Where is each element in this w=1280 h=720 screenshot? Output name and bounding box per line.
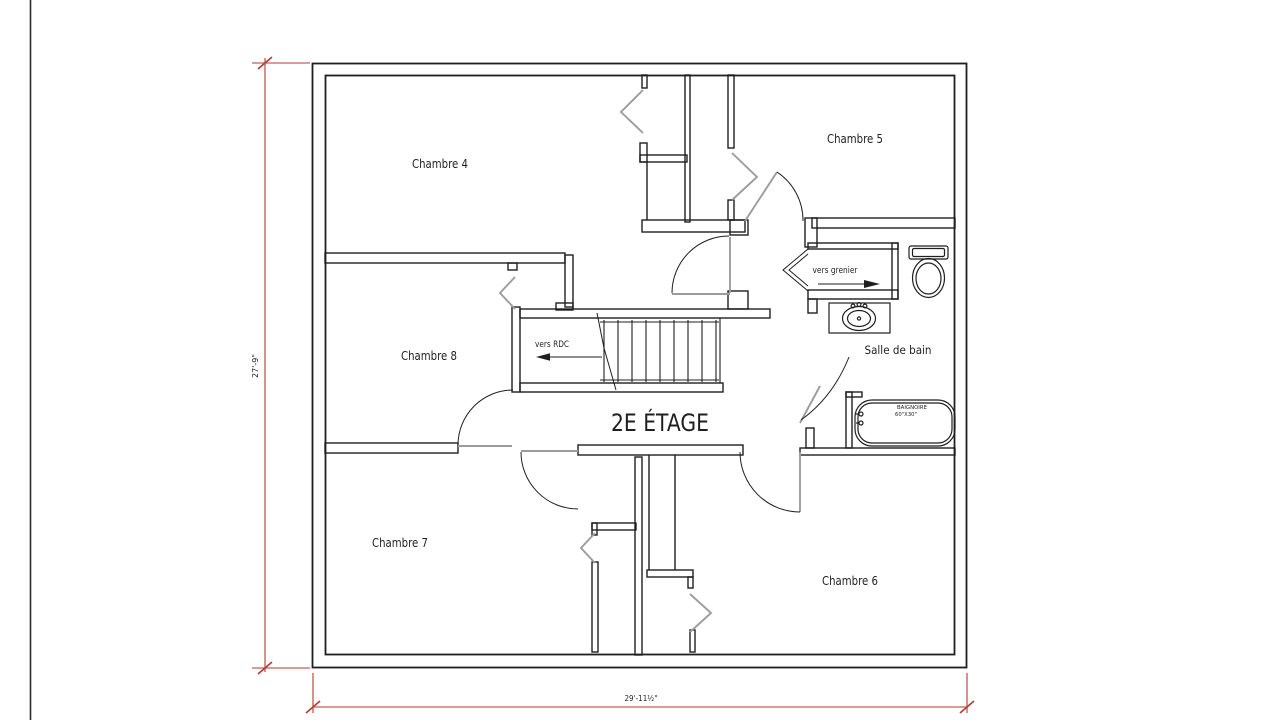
room-label-chambre-6: Chambre 6 — [822, 574, 878, 588]
bath-door-arc — [801, 357, 849, 420]
wall-tub-cap — [846, 392, 862, 397]
toilet-bowl — [913, 259, 945, 298]
sink-icon — [829, 303, 890, 333]
c5-closet-door — [732, 153, 757, 200]
annotation-vers-grenier: vers grenier — [813, 266, 858, 276]
sink-faucet-handle — [863, 304, 867, 308]
sink-vanity — [829, 303, 890, 333]
plan-title: 2E ÉTAGE — [611, 408, 709, 437]
c7-closet-door — [581, 533, 595, 563]
room-label-salle-de-bain: Salle de bain — [865, 343, 932, 357]
c5-door-leaf — [745, 172, 777, 221]
bathtub-faucet — [859, 412, 863, 416]
wall-c7-closet-left — [592, 562, 598, 652]
sink-basin-inner — [848, 311, 871, 327]
c6-closet-door — [690, 594, 711, 632]
wall-c5-south — [812, 218, 955, 228]
sink-drain — [857, 317, 860, 320]
attic-door-outer — [783, 249, 808, 291]
wall-bathdoor-stub-bottom — [806, 428, 814, 448]
wall-stair-step — [728, 291, 748, 309]
wall-closet-divider-top — [685, 75, 690, 222]
wall-c6-closet-stub — [690, 630, 695, 652]
wall-c6-closet-hinge — [688, 577, 693, 588]
c6-door-arc — [740, 452, 800, 512]
wall-c7-closet-top — [592, 523, 636, 530]
wall-c8-c7 — [325, 443, 458, 453]
vers-rdc-arrow-head — [536, 353, 550, 361]
vers-grenier-arrow-head — [864, 280, 880, 288]
wall-stair-bottom — [520, 383, 723, 392]
room-label-chambre-7: Chambre 7 — [372, 536, 428, 550]
staircase — [597, 313, 720, 390]
wall-bath-c6 — [800, 448, 955, 455]
toilet-icon — [909, 246, 948, 298]
hall-door-arc — [672, 236, 729, 293]
doors — [458, 90, 849, 632]
c8-door-arc — [458, 390, 513, 445]
room-label-chambre-8: Chambre 8 — [401, 349, 457, 363]
c7-door-arc — [521, 452, 578, 509]
toilet-bowl-inner — [916, 263, 941, 294]
wall-hinge-stub — [508, 263, 517, 270]
c5-door-arc — [777, 172, 803, 221]
wall-attic-bottom — [808, 290, 898, 299]
wall-c5-closet-left — [728, 75, 734, 148]
wall-attic-top — [808, 243, 898, 249]
wall-c7-c6 — [578, 445, 743, 455]
sink-faucet-handle — [851, 304, 855, 308]
wall-c6-closet-top — [647, 570, 693, 577]
room-label-chambre-4: Chambre 4 — [412, 157, 468, 171]
wall-c7-c6-divider — [635, 457, 642, 655]
annotation-vers-rdc: vers RDC — [535, 340, 569, 350]
dim-label-vertical: 27'-9" — [251, 354, 260, 378]
bath-door-leaf — [800, 386, 820, 423]
sink-faucet-spout — [857, 303, 861, 307]
c4-closet-door — [621, 90, 643, 133]
wall-stair-left — [512, 307, 520, 392]
wall-c4-closet-stub — [640, 143, 647, 162]
toilet-tank-inner — [913, 249, 945, 257]
room-label-chambre-5: Chambre 5 — [827, 132, 883, 146]
floor-plan-svg: Chambre 4 Chambre 5 Chambre 8 Chambre 7 … — [0, 0, 1280, 720]
dimension-lines — [252, 57, 974, 713]
wall-c5-closet-stub — [728, 200, 734, 220]
c8-closet-door — [500, 277, 515, 309]
bathtub-label-line1: BAIGNOIRE — [897, 405, 927, 411]
wall-tub-left — [846, 392, 852, 448]
wall-top-stub — [642, 75, 647, 88]
wall-c8-closet-right — [565, 255, 573, 307]
bathtub-faucet — [859, 421, 863, 425]
wall-bathdoor-stub-top — [808, 299, 817, 313]
attic-door-inner — [789, 254, 808, 286]
dim-label-horizontal: 29'-11½" — [625, 694, 658, 703]
stair-break-line — [597, 313, 616, 390]
bathtub-label-line2: 60"X30" — [895, 412, 917, 418]
floor-plan-page: Chambre 4 Chambre 5 Chambre 8 Chambre 7 … — [0, 0, 1280, 720]
wall-c4-c8 — [325, 253, 565, 263]
